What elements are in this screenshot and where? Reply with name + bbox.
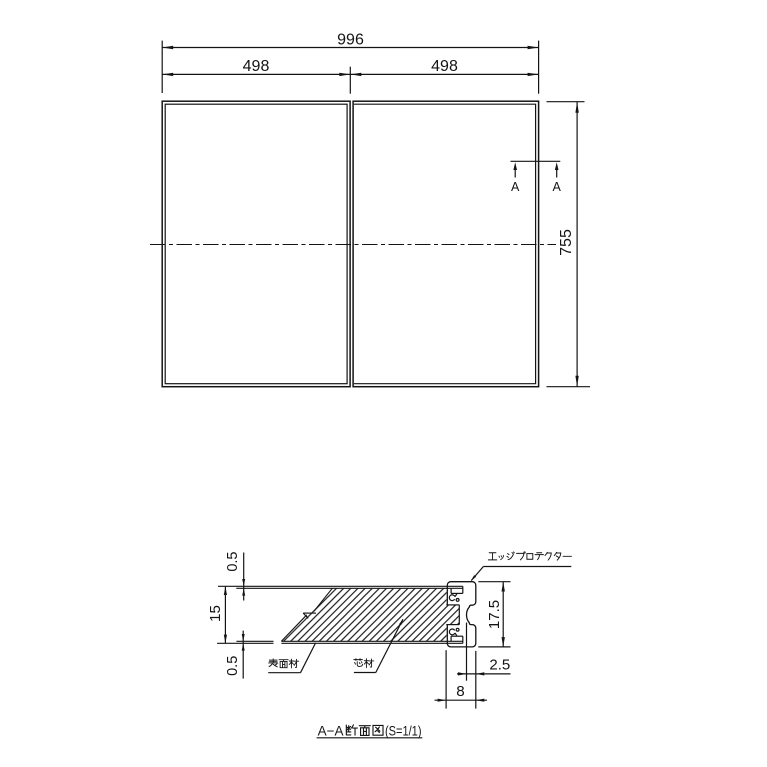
svg-text:A−A: A−A [318,724,344,739]
svg-text:0.5: 0.5 [225,656,241,676]
svg-text:(S=1/1): (S=1/1) [385,724,422,739]
svg-text:996: 996 [337,32,364,49]
svg-text:0.5: 0.5 [225,552,241,572]
svg-text:A: A [553,180,562,194]
svg-text:15: 15 [207,605,224,622]
svg-text:A: A [511,180,520,194]
svg-text:17.5: 17.5 [486,600,503,629]
svg-text:8: 8 [456,683,464,700]
svg-text:498: 498 [243,58,270,75]
svg-text:755: 755 [558,229,575,256]
svg-text:2.5: 2.5 [489,657,510,674]
svg-text:498: 498 [431,58,458,75]
